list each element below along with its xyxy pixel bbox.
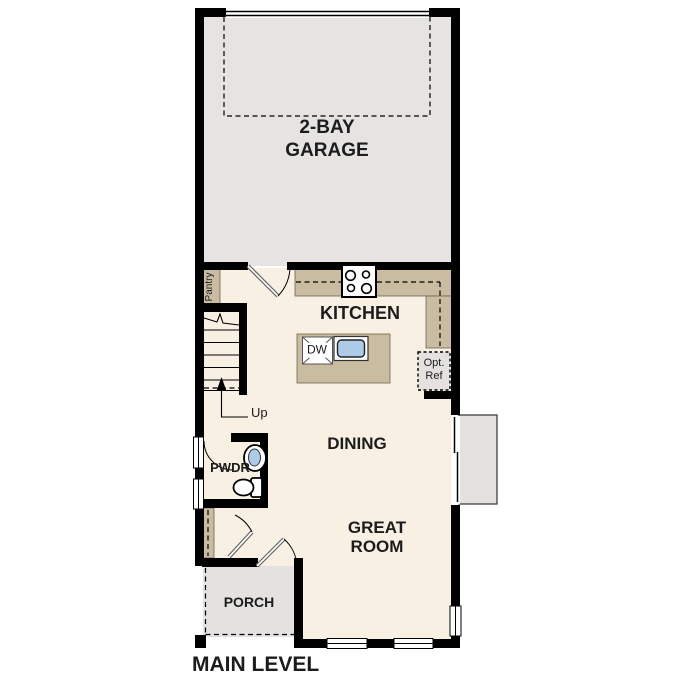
patio-bumpout <box>459 415 497 504</box>
wall-front-entry <box>202 558 258 567</box>
toilet-bowl <box>234 480 254 496</box>
wall-stair-right <box>239 303 247 395</box>
wall-garage-sep-left <box>195 262 248 270</box>
floor-plan: 2-BAY GARAGE KITCHEN DINING GREAT ROOM P… <box>0 0 687 687</box>
burner-icon <box>348 285 355 292</box>
optional-ref-label-line2: Ref <box>424 370 445 383</box>
wall-kitchen-stub <box>424 391 452 399</box>
pantry-label: Pantry <box>204 273 216 302</box>
garage-label-line2: GARAGE <box>285 139 368 162</box>
powder-room-label: PWDR <box>210 460 250 476</box>
porch-label: PORCH <box>224 594 275 611</box>
garage-label-line1: 2-BAY <box>285 116 368 139</box>
wall-right-upper <box>451 8 460 415</box>
garage-label: 2-BAY GARAGE <box>285 116 368 162</box>
wall-porch-right <box>294 558 303 648</box>
great-room-label-line1: GREAT <box>348 518 406 537</box>
great-room-label-line2: ROOM <box>348 537 406 556</box>
kitchen-label: KITCHEN <box>320 303 400 325</box>
optional-ref-label-line1: Opt. <box>424 357 445 370</box>
optional-ref-label: Opt. Ref <box>424 357 445 383</box>
kitchen-counter-right <box>426 296 452 348</box>
stove-cooktop <box>342 265 376 297</box>
sliding-patio-door <box>451 416 460 504</box>
burner-icon <box>363 271 370 278</box>
wall-powder-bottom <box>195 499 268 508</box>
dishwasher-label: DW <box>306 343 328 358</box>
kitchen-sink <box>334 337 368 361</box>
burner-icon <box>362 284 372 294</box>
stairs-up-label: Up <box>251 405 268 421</box>
plan-title: MAIN LEVEL <box>192 652 319 678</box>
dining-label: DINING <box>327 434 387 455</box>
burner-icon <box>346 271 356 281</box>
wall-bottom <box>294 639 460 648</box>
wall-porch-corner-stub <box>195 635 206 648</box>
floor-plan-linework <box>0 0 687 687</box>
vanity-sink-basin <box>249 449 261 466</box>
great-room-label: GREAT ROOM <box>348 518 406 556</box>
